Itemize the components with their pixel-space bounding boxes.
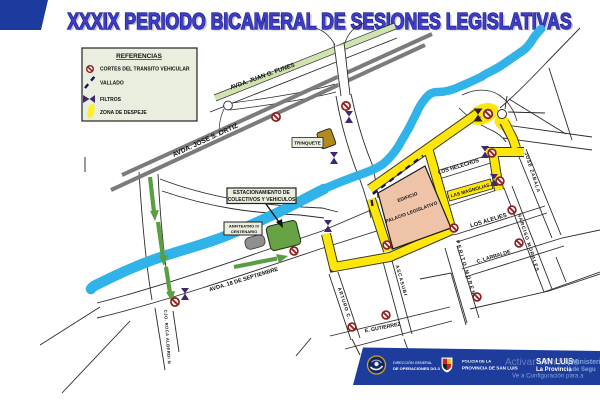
svg-text:REFERENCIAS: REFERENCIAS xyxy=(116,53,163,60)
svg-text:DE OPERACIONES DG-3: DE OPERACIONES DG-3 xyxy=(393,366,441,371)
svg-text:POLICIA DE LA: POLICIA DE LA xyxy=(462,359,491,364)
svg-text:ZONA DE DESPEJE: ZONA DE DESPEJE xyxy=(100,110,147,116)
svg-text:CENTENARIO: CENTENARIO xyxy=(231,229,257,234)
svg-text:XXXIX PERIODO BICAMERAL DE SES: XXXIX PERIODO BICAMERAL DE SESIONES LEGI… xyxy=(67,9,571,35)
svg-text:TRINQUETE: TRINQUETE xyxy=(294,141,321,146)
svg-text:Ve a Configuración para a: Ve a Configuración para a xyxy=(512,373,584,380)
svg-text:FILTROS: FILTROS xyxy=(100,97,122,103)
svg-text:Activar Windows: Activar Windows xyxy=(505,357,579,368)
svg-text:DIRECCIÓN GENERAL: DIRECCIÓN GENERAL xyxy=(393,360,432,365)
svg-text:CORTES DEL TRANSITO VEHICULAR: CORTES DEL TRANSITO VEHICULAR xyxy=(100,67,190,73)
svg-text:ESTACIONAMIENTO DE: ESTACIONAMIENTO DE xyxy=(233,190,290,196)
svg-text:VALLADO: VALLADO xyxy=(100,81,124,87)
svg-text:COLECTIVOS Y VEHICULOS: COLECTIVOS Y VEHICULOS xyxy=(228,197,296,203)
svg-text:ANFITEATRO IV: ANFITEATRO IV xyxy=(229,224,260,229)
